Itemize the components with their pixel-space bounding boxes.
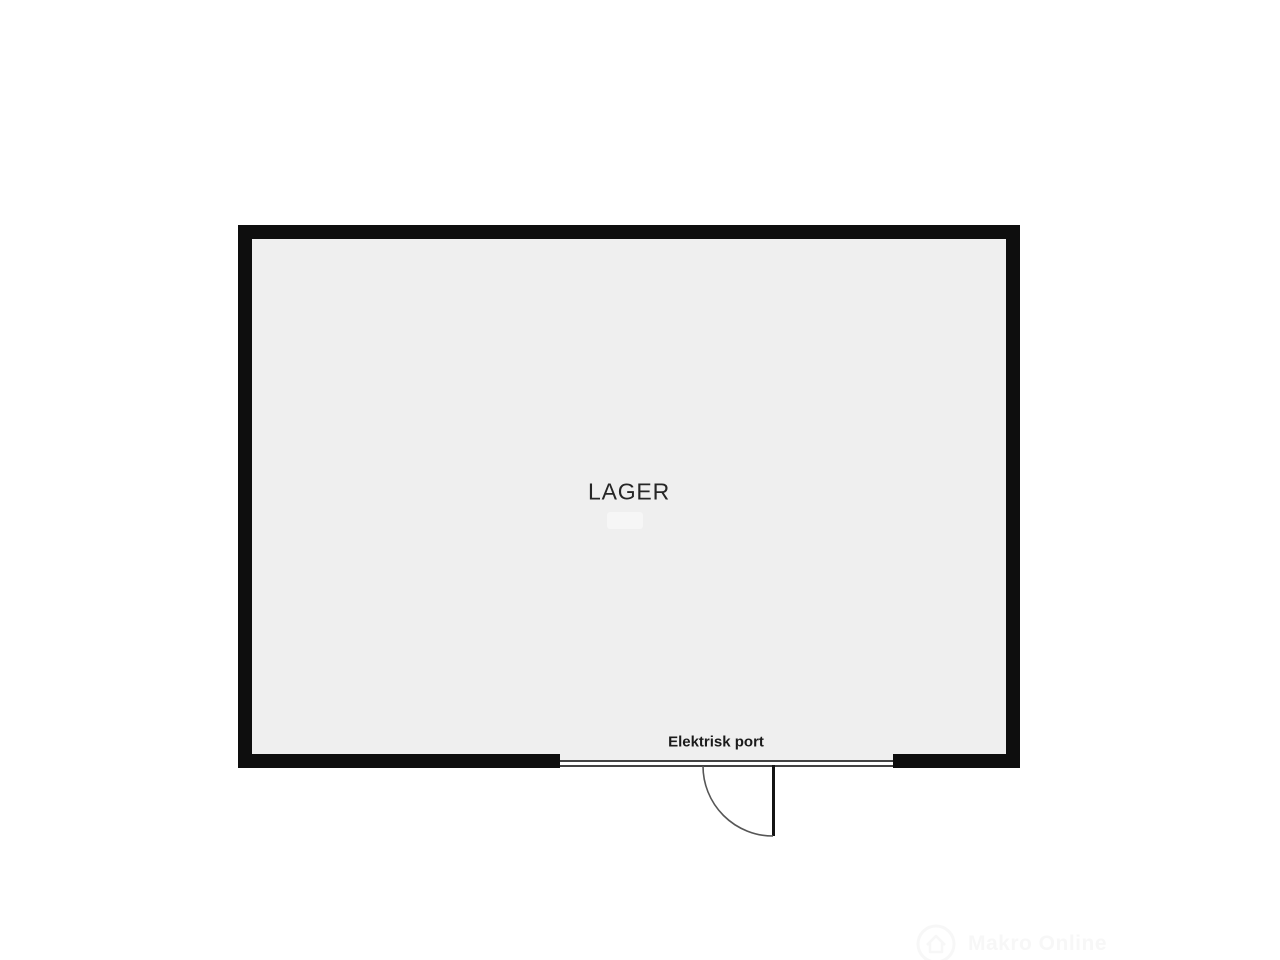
- door-leaf: [772, 765, 775, 836]
- port-line-inner: [560, 765, 893, 767]
- floor-plan-canvas: LAGER Elektrisk port Makro Online: [0, 0, 1280, 960]
- faded-area-label: [607, 512, 643, 529]
- port-line-outer: [560, 760, 893, 762]
- watermark-text: Makro Online: [968, 932, 1107, 956]
- watermark: Makro Online: [916, 924, 1107, 960]
- electric-port-label: Elektrisk port: [668, 734, 764, 751]
- room-label: LAGER: [588, 479, 670, 506]
- watermark-house-icon: [916, 924, 956, 960]
- electric-port-opening: [560, 754, 893, 768]
